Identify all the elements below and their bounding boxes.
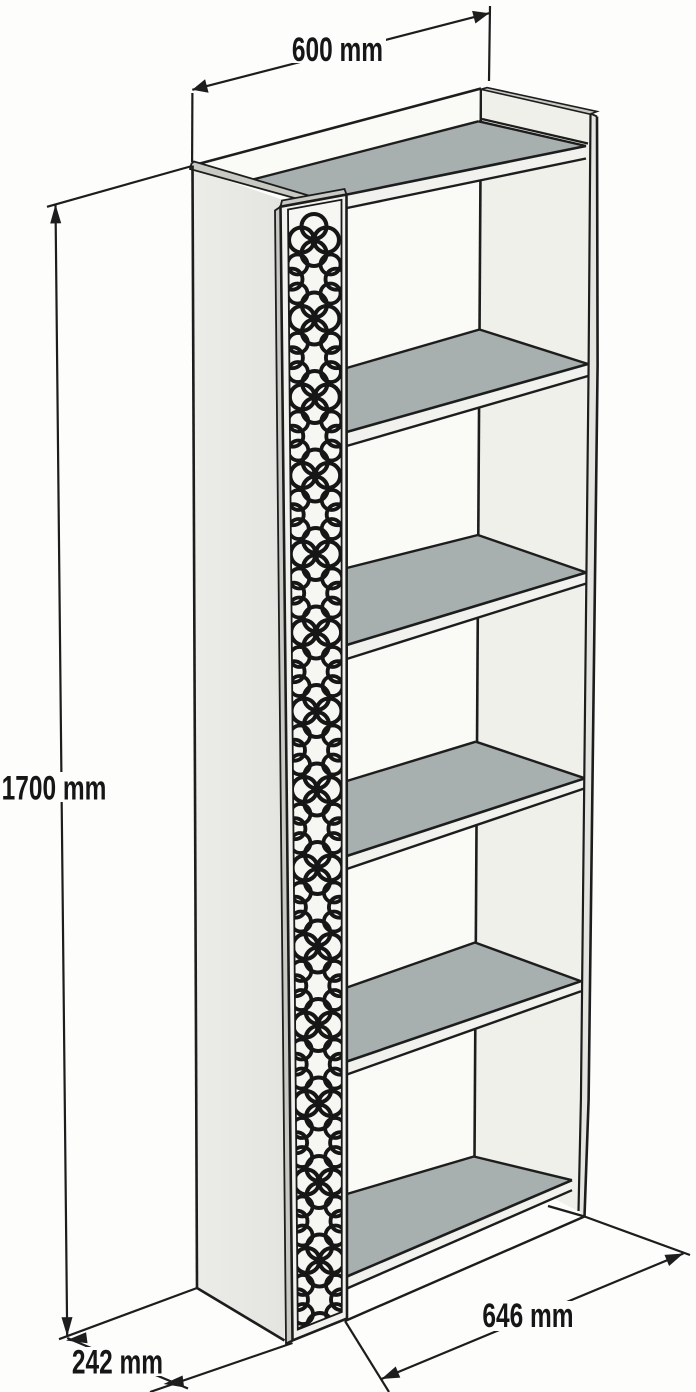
svg-text:646 mm: 646 mm bbox=[482, 1297, 573, 1335]
svg-text:242 mm: 242 mm bbox=[72, 1344, 163, 1382]
svg-text:600 mm: 600 mm bbox=[292, 31, 383, 69]
svg-text:1700 mm: 1700 mm bbox=[2, 770, 107, 808]
